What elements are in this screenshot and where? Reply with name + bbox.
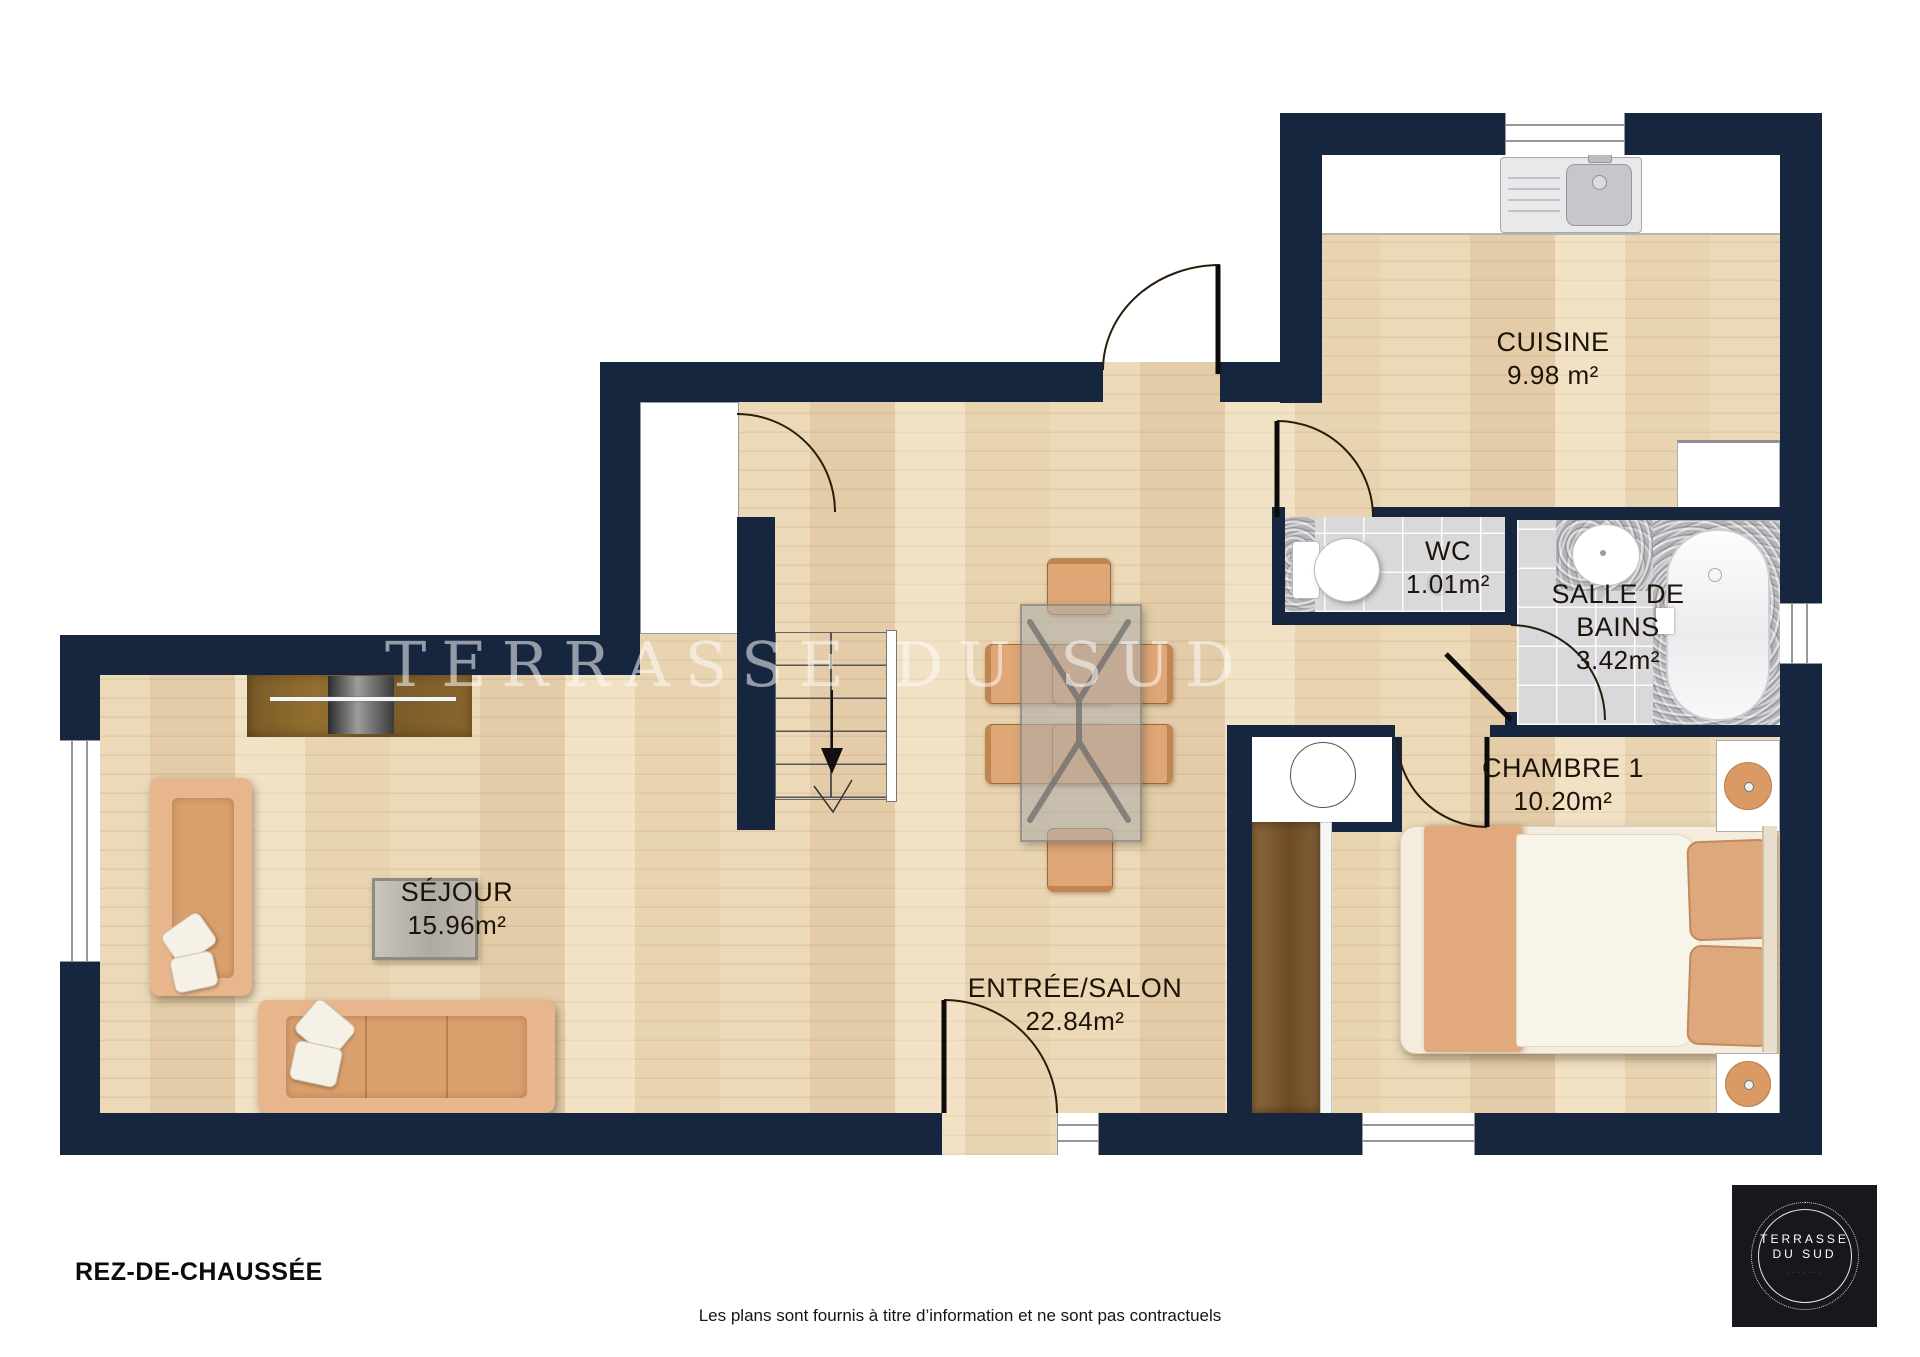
label-entree-salon-name: ENTRÉE/SALON [955, 972, 1195, 1005]
label-wc-area: 1.01m² [1398, 568, 1498, 601]
watermark: TERRASSE DU SUD [385, 628, 1250, 701]
label-entree-salon: ENTRÉE/SALON 22.84m² [955, 972, 1195, 1038]
label-wc: WC 1.01m² [1398, 535, 1498, 601]
label-cuisine-area: 9.98 m² [1448, 359, 1658, 392]
terrace-door-arc [1103, 265, 1220, 370]
disclaimer-text: Les plans sont fournis à titre d’informa… [460, 1306, 1460, 1326]
label-cuisine: CUISINE 9.98 m² [1448, 326, 1658, 392]
logo-text: TERRASSE DU SUD · · · · · · · [1760, 1232, 1849, 1281]
floorplan-canvas: TERRASSE DU SUD CUISINE 9.98 m² WC 1.01m… [0, 0, 1920, 1357]
label-salle-de-bains: SALLE DE BAINS 3.42m² [1543, 578, 1693, 677]
label-chambre1-name: CHAMBRE 1 [1463, 752, 1663, 785]
logo-line2: DU SUD [1760, 1247, 1849, 1262]
logo-line1: TERRASSE [1760, 1232, 1849, 1247]
label-wc-name: WC [1398, 535, 1498, 568]
label-sejour-area: 15.96m² [357, 909, 557, 942]
floor-title: REZ-DE-CHAUSSÉE [75, 1258, 323, 1287]
agency-logo: TERRASSE DU SUD · · · · · · · [1732, 1185, 1877, 1327]
bathroom-door-leaf [1446, 654, 1511, 720]
label-chambre1-area: 10.20m² [1463, 785, 1663, 818]
label-salle-de-bains-area: 3.42m² [1543, 644, 1693, 677]
wc-door-arc [1277, 421, 1373, 517]
stairs-direction [814, 690, 852, 812]
label-sejour-name: SÉJOUR [357, 876, 557, 909]
label-salle-de-bains-name: SALLE DE BAINS [1543, 578, 1693, 644]
closet-door-arc [737, 414, 835, 512]
label-entree-salon-area: 22.84m² [955, 1005, 1195, 1038]
logo-subtext: · · · · · · · [1760, 1266, 1849, 1281]
label-chambre1: CHAMBRE 1 10.20m² [1463, 752, 1663, 818]
label-sejour: SÉJOUR 15.96m² [357, 876, 557, 942]
label-cuisine-name: CUISINE [1448, 326, 1658, 359]
